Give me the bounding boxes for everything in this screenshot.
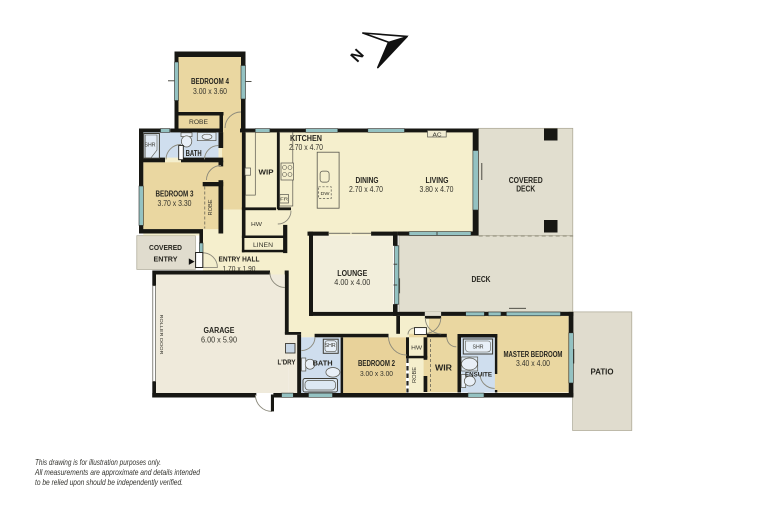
svg-text:DW: DW bbox=[321, 191, 331, 196]
svg-text:BEDROOM 3: BEDROOM 3 bbox=[156, 189, 194, 199]
svg-text:to be relied upon should be in: to be relied upon should be independentl… bbox=[35, 477, 183, 487]
svg-text:This drawing is for illustrati: This drawing is for illustration purpose… bbox=[35, 457, 161, 467]
svg-text:DINING: DINING bbox=[356, 176, 379, 185]
svg-text:HW: HW bbox=[251, 222, 263, 228]
svg-text:ROLLER DOOR: ROLLER DOOR bbox=[159, 315, 164, 356]
svg-text:HW: HW bbox=[411, 346, 423, 352]
svg-text:COVERED: COVERED bbox=[149, 243, 182, 252]
svg-text:ENTRY HALL: ENTRY HALL bbox=[219, 255, 260, 264]
svg-text:GARAGE: GARAGE bbox=[204, 325, 235, 335]
svg-text:LOUNGE: LOUNGE bbox=[337, 268, 367, 278]
svg-text:ENSUITE: ENSUITE bbox=[465, 372, 492, 379]
svg-text:SHR: SHR bbox=[145, 143, 156, 149]
svg-text:6.00 x 5.90: 6.00 x 5.90 bbox=[201, 336, 237, 345]
svg-text:1.70 x 1.90: 1.70 x 1.90 bbox=[223, 264, 256, 273]
svg-text:BATH: BATH bbox=[186, 148, 202, 158]
svg-text:3.40 x 4.00: 3.40 x 4.00 bbox=[516, 359, 550, 368]
svg-text:DECK: DECK bbox=[472, 275, 491, 284]
svg-text:BATH: BATH bbox=[313, 359, 333, 368]
svg-text:L'DRY: L'DRY bbox=[278, 358, 296, 367]
svg-text:BEDROOM 2: BEDROOM 2 bbox=[358, 359, 395, 368]
svg-text:LIVING: LIVING bbox=[426, 176, 449, 185]
svg-text:3.70 x 3.30: 3.70 x 3.30 bbox=[158, 199, 192, 208]
svg-text:SHR: SHR bbox=[473, 345, 484, 351]
svg-text:AC: AC bbox=[433, 132, 442, 138]
svg-text:4.00 x 4.00: 4.00 x 4.00 bbox=[334, 278, 370, 287]
svg-text:WIR: WIR bbox=[435, 364, 452, 373]
svg-text:ENTRY: ENTRY bbox=[154, 254, 178, 263]
svg-text:ROBE: ROBE bbox=[189, 119, 208, 126]
svg-text:WIP: WIP bbox=[259, 168, 274, 177]
svg-text:MASTER BEDROOM: MASTER BEDROOM bbox=[504, 349, 563, 359]
svg-text:3.00 x 3.60: 3.00 x 3.60 bbox=[193, 87, 227, 96]
svg-text:DECK: DECK bbox=[516, 185, 535, 194]
svg-text:LINEN: LINEN bbox=[253, 242, 273, 249]
svg-text:SHR: SHR bbox=[325, 343, 336, 349]
svg-text:3.00 x 3.00: 3.00 x 3.00 bbox=[360, 369, 393, 378]
svg-text:3.80 x 4.70: 3.80 x 4.70 bbox=[420, 185, 454, 194]
svg-text:COVERED: COVERED bbox=[509, 176, 543, 185]
svg-text:FR: FR bbox=[280, 197, 289, 202]
svg-text:All measurements are approxima: All measurements are approximate and det… bbox=[34, 467, 200, 477]
svg-text:ROBE: ROBE bbox=[412, 366, 418, 383]
svg-text:KITCHEN: KITCHEN bbox=[290, 133, 322, 143]
svg-text:2.70 x 4.70: 2.70 x 4.70 bbox=[349, 185, 383, 194]
svg-text:2.70 x 4.70: 2.70 x 4.70 bbox=[289, 143, 323, 152]
svg-text:BEDROOM 4: BEDROOM 4 bbox=[191, 76, 229, 86]
svg-text:ROBE: ROBE bbox=[208, 199, 214, 216]
svg-text:PATIO: PATIO bbox=[591, 368, 614, 377]
